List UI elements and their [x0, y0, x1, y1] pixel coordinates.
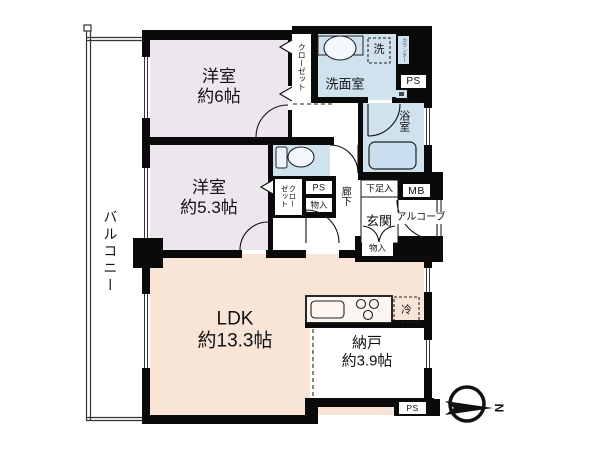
shoe-cabinet-label: 下足入	[366, 183, 393, 194]
washing-machine-label: 洗	[374, 44, 385, 57]
closet1-label: クローゼット	[297, 43, 305, 91]
pipe-space-bottom-label: PS	[406, 403, 418, 413]
kitchen-counter	[306, 296, 392, 323]
sink-basin	[324, 36, 356, 60]
storage-hall-label: 物入	[310, 200, 327, 210]
pipe-space-top-label: PS	[406, 76, 420, 88]
toilet-door-arc	[330, 145, 358, 173]
closet2-label: クロー ゼット	[280, 185, 296, 208]
bathroom-label: 浴室	[397, 110, 409, 132]
compass-north-label: N	[492, 404, 506, 413]
counter-label: カウンター	[401, 38, 406, 63]
meter-box-label: MB	[408, 184, 425, 196]
alcove-label: アルコーブ	[395, 212, 446, 224]
storage-room-label: 納戸 約3.9帖	[342, 334, 393, 369]
compass	[445, 387, 493, 421]
storage-entrance-label: 物入	[369, 243, 386, 253]
bedroom1-label: 洋室 約6帖	[197, 67, 240, 107]
toilet-tank	[276, 147, 287, 168]
ldk-label: LDK 約13.3帖	[198, 309, 273, 354]
hallway-label: 廊下	[339, 186, 350, 206]
pipe-space-mid-label: PS	[312, 182, 325, 193]
washroom-label: 洗面室	[325, 76, 364, 91]
bedroom2-label: 洋室 約5.3帖	[180, 178, 238, 218]
toilet-bowl	[288, 147, 314, 167]
entrance-label: 玄関	[366, 213, 392, 228]
balcony-label: バルコニー	[103, 210, 118, 295]
refrigerator-label: 冷	[401, 304, 412, 316]
bathtub	[369, 142, 416, 169]
floorplan-canvas: 洋室 約6帖 洋室 約5.3帖 LDK 約13.3帖 納戸 約3.9帖 バルコニ…	[0, 0, 600, 450]
